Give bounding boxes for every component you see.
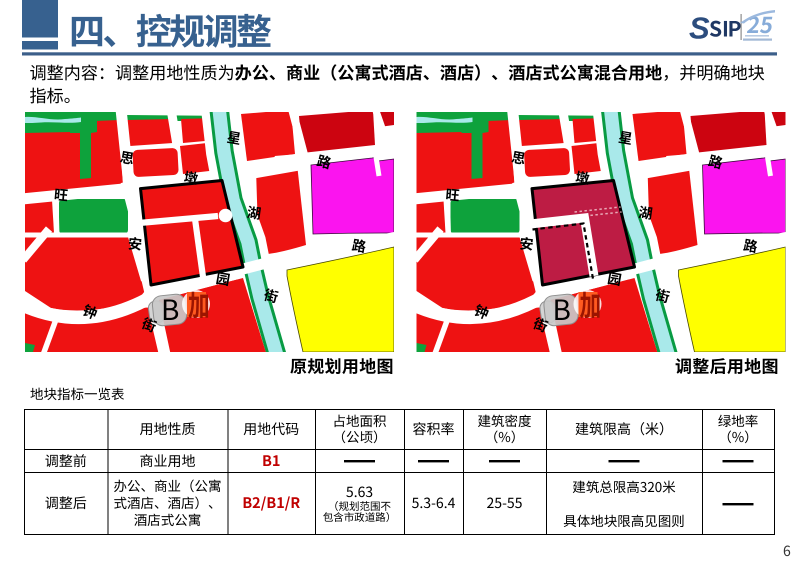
- svg-text:S: S: [689, 11, 710, 46]
